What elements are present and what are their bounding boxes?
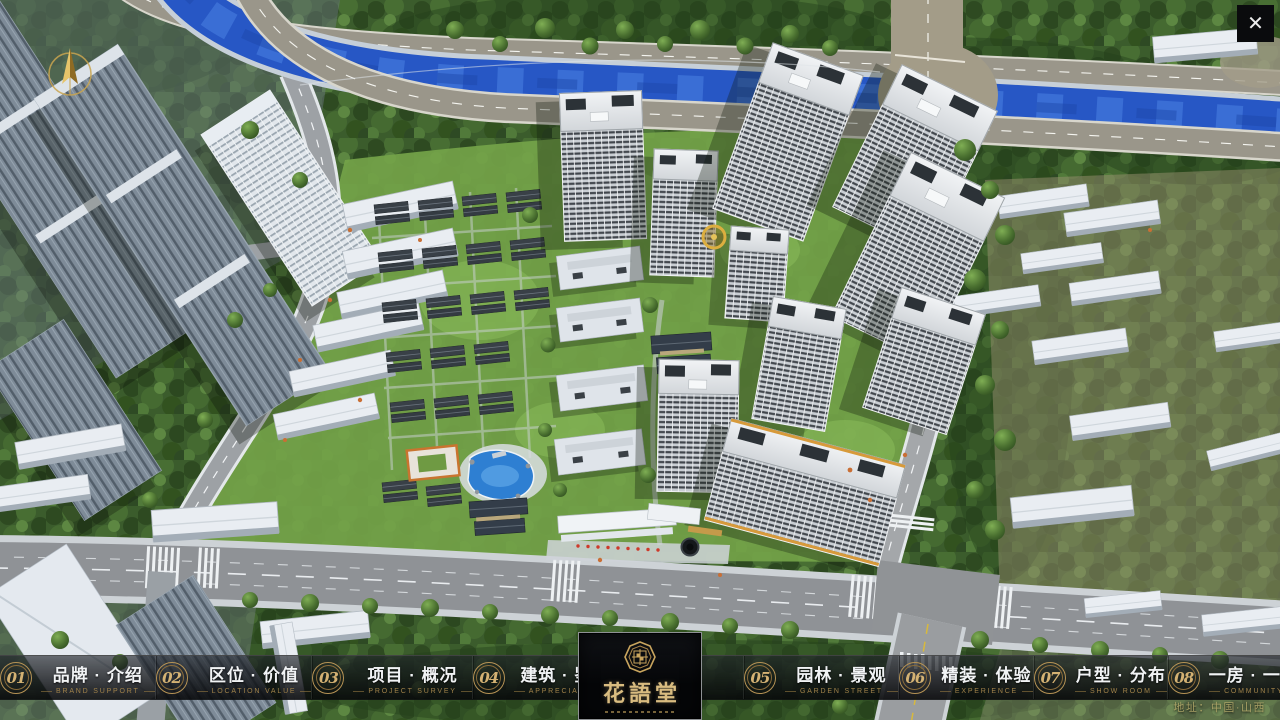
brand-name: 花語堂 bbox=[599, 676, 681, 708]
landscape-pool bbox=[459, 444, 547, 504]
nav-item-sublabel: LOCATION VALUE bbox=[197, 688, 312, 695]
nav-item-label: 园林 · 景观 bbox=[796, 661, 886, 686]
nav-item-label: 品牌 · 介绍 bbox=[53, 661, 143, 686]
nav-group-right: 05 园林 · 景观 GARDEN STREET 06 精装 · 体验 EXPE… bbox=[743, 656, 1280, 699]
nav-item-label: 精装 · 体验 bbox=[941, 661, 1031, 686]
nav-number-badge: 03 bbox=[312, 662, 344, 694]
nav-number-badge: 06 bbox=[899, 662, 931, 694]
nav-item-label: 项目 · 概况 bbox=[368, 661, 458, 686]
nav-item-sublabel: SHOW ROOM bbox=[1075, 688, 1167, 695]
nav-item-sublabel: EXPERIENCE bbox=[940, 688, 1033, 695]
nav-number-badge: 07 bbox=[1034, 662, 1066, 694]
playground bbox=[703, 226, 725, 248]
nav-number-badge: 02 bbox=[156, 662, 188, 694]
tower bbox=[535, 91, 646, 251]
nav-group-left: 01 品牌 · 介绍 BRAND SUPPORT 02 区位 · 价值 LOCA… bbox=[0, 656, 617, 699]
nav-item-room-view[interactable]: 08 一房 · 一景 COMMUNITY bbox=[1167, 656, 1280, 699]
nav-item-garden-landscape[interactable]: 05 园林 · 景观 GARDEN STREET bbox=[743, 656, 898, 699]
brand-logo-panel[interactable]: 花語堂 bbox=[578, 632, 702, 720]
project-address: 地址：中国·山西 bbox=[1173, 699, 1266, 715]
nav-item-sublabel: BRAND SUPPORT bbox=[41, 688, 155, 695]
brand-seal-icon bbox=[623, 640, 657, 674]
nav-item-sublabel: PROJECT SURVEY bbox=[353, 688, 471, 695]
nav-item-brand-intro[interactable]: 01 品牌 · 介绍 BRAND SUPPORT bbox=[0, 656, 155, 699]
nav-item-sublabel: GARDEN STREET bbox=[785, 688, 898, 695]
nav-item-label: 一房 · 一景 bbox=[1209, 661, 1280, 686]
nav-item-label: 区位 · 价值 bbox=[209, 661, 299, 686]
nav-item-label: 户型 · 分布 bbox=[1076, 661, 1166, 686]
aerial-rendering bbox=[0, 0, 1280, 720]
nav-number-badge: 01 bbox=[0, 662, 32, 694]
nav-item-location-value[interactable]: 02 区位 · 价值 LOCATION VALUE bbox=[155, 656, 312, 699]
nav-number-badge: 08 bbox=[1168, 662, 1200, 694]
kindergarten bbox=[407, 445, 460, 480]
nav-item-sublabel: COMMUNITY bbox=[1209, 688, 1280, 695]
nav-item-project-overview[interactable]: 03 项目 · 概况 PROJECT SURVEY bbox=[311, 656, 471, 699]
presentation-screen: ✕ 01 品牌 · 介绍 BRAND SUPPORT 02 区位 · 价值 LO… bbox=[0, 0, 1280, 720]
brand-tagline-rule bbox=[605, 711, 675, 713]
nav-item-interior-experience[interactable]: 06 精装 · 体验 EXPERIENCE bbox=[898, 656, 1033, 699]
close-button[interactable]: ✕ bbox=[1237, 5, 1274, 42]
nav-number-badge: 04 bbox=[473, 662, 505, 694]
close-icon: ✕ bbox=[1247, 14, 1264, 34]
nav-number-badge: 05 bbox=[744, 662, 776, 694]
nav-item-floorplan-distribution[interactable]: 07 户型 · 分布 SHOW ROOM bbox=[1033, 656, 1167, 699]
